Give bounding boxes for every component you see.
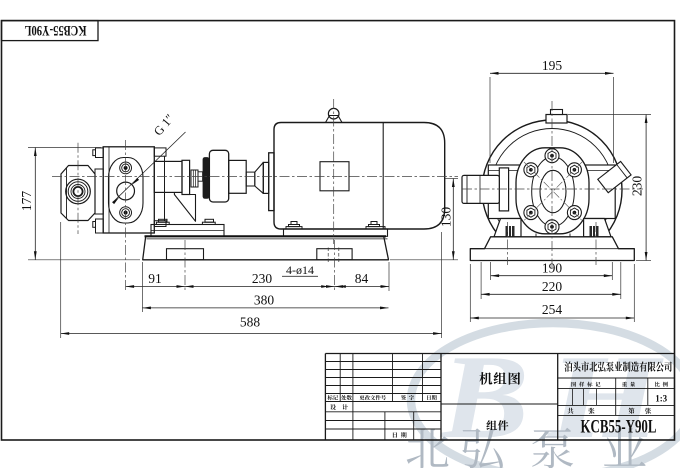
svg-text:230: 230 (252, 271, 273, 286)
svg-text:177: 177 (19, 191, 34, 212)
svg-text:KCB55-Y90L: KCB55-Y90L (25, 22, 87, 38)
svg-text:130: 130 (439, 207, 454, 228)
svg-text:588: 588 (240, 314, 261, 329)
svg-text:254: 254 (542, 302, 563, 317)
svg-text:190: 190 (542, 260, 563, 275)
svg-text:230: 230 (630, 176, 645, 197)
svg-text:195: 195 (542, 58, 563, 73)
svg-text:KCB55-Y90L: KCB55-Y90L (581, 417, 657, 438)
svg-text:84: 84 (355, 271, 369, 286)
svg-text:91: 91 (148, 271, 162, 286)
svg-text:380: 380 (254, 292, 275, 307)
svg-text:B: B (439, 330, 529, 463)
svg-text:220: 220 (542, 279, 563, 294)
svg-text:4-ø14: 4-ø14 (286, 263, 314, 277)
svg-text:1:3: 1:3 (655, 394, 667, 404)
svg-text:G 1″: G 1″ (151, 111, 177, 138)
